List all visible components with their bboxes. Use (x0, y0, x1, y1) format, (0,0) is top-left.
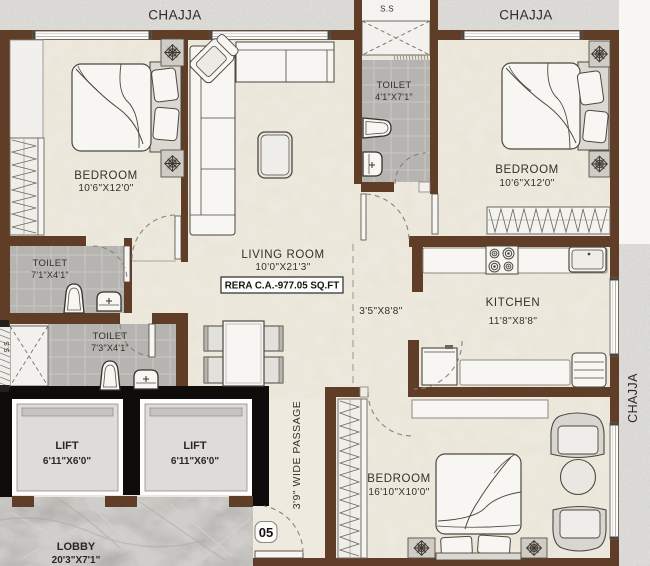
svg-text:6'11"X6'0": 6'11"X6'0" (43, 456, 91, 467)
svg-text:LIFT: LIFT (183, 440, 206, 452)
svg-text:S.S: S.S (4, 341, 11, 353)
svg-text:KITCHEN: KITCHEN (486, 297, 541, 309)
svg-text:6'11"X6'0": 6'11"X6'0" (171, 456, 219, 467)
svg-text:BEDROOM: BEDROOM (367, 473, 431, 485)
svg-text:10'6"X12'0": 10'6"X12'0" (78, 183, 133, 194)
svg-text:LOBBY: LOBBY (57, 541, 96, 553)
svg-text:4'1"X7'1": 4'1"X7'1" (375, 92, 413, 102)
svg-text:TOILET: TOILET (377, 80, 412, 91)
svg-text:10'6"X12'0": 10'6"X12'0" (499, 178, 554, 189)
svg-text:05: 05 (259, 525, 273, 540)
svg-text:BEDROOM: BEDROOM (74, 170, 138, 182)
svg-text:CHAJJA: CHAJJA (626, 373, 640, 423)
svg-text:S.S: S.S (380, 5, 394, 14)
svg-text:RERA C.A.-977.05 SQ.FT: RERA C.A.-977.05 SQ.FT (225, 281, 340, 292)
svg-text:LIVING ROOM: LIVING ROOM (241, 249, 324, 261)
svg-text:3'5"X8'8": 3'5"X8'8" (359, 306, 402, 317)
svg-text:TOILET: TOILET (93, 331, 128, 342)
svg-text:CHAJJA: CHAJJA (499, 8, 552, 23)
svg-text:CHAJJA: CHAJJA (148, 8, 201, 23)
svg-text:LIFT: LIFT (55, 440, 78, 452)
svg-text:BEDROOM: BEDROOM (495, 164, 559, 176)
svg-text:20'3"X7'1": 20'3"X7'1" (52, 555, 101, 566)
svg-text:10'0"X21'3": 10'0"X21'3" (255, 262, 310, 273)
svg-text:TOILET: TOILET (33, 258, 68, 269)
svg-text:7'3"X4'1": 7'3"X4'1" (91, 343, 129, 353)
svg-text:16'10"X10'0": 16'10"X10'0" (368, 487, 429, 498)
svg-text:3'9" WIDE PASSAGE: 3'9" WIDE PASSAGE (291, 401, 303, 510)
svg-text:11'8"X8'8": 11'8"X8'8" (489, 316, 538, 327)
svg-text:7'1"X4'1": 7'1"X4'1" (31, 270, 69, 280)
